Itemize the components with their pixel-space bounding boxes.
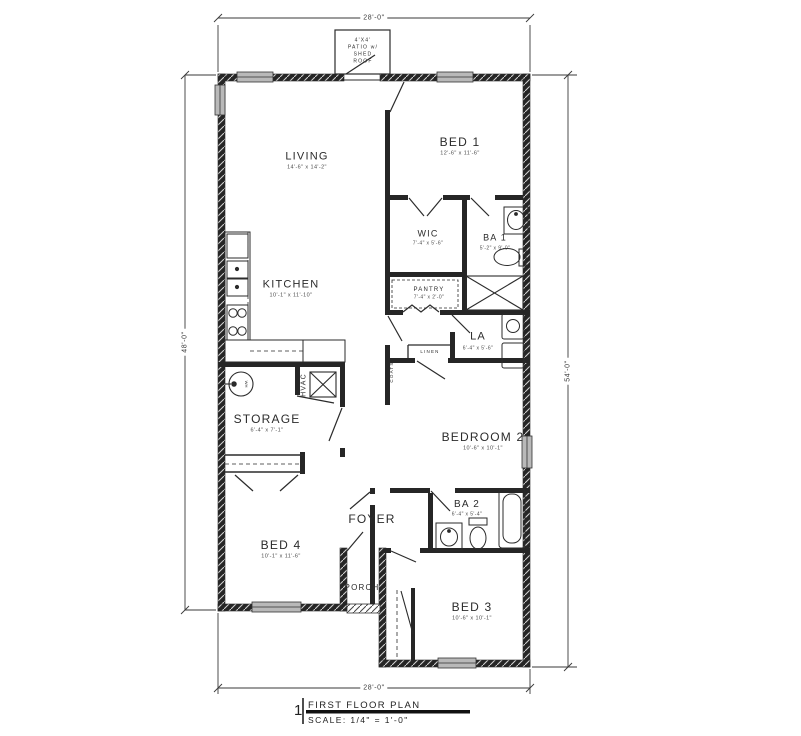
floor-plan-sheet: 4'X4' PATIO w/ SHED ROOF LIVING 14'-6" x… [0,0,801,736]
ba2-toilet-tank [469,518,487,525]
room-dims-kitchen: 10'-1" x 11'-10" [270,293,313,299]
room-label-la: LA [470,332,486,343]
room-dims-storage: 6'-4" x 7'-1" [251,428,284,434]
room-dims-la: 6'-4" x 5'-6" [463,347,493,352]
ba1-door [471,198,489,216]
hall-door [388,316,402,341]
washer [502,314,524,339]
interior-walls [218,110,530,662]
front-door [347,532,363,551]
patio-label-line2: PATIO w/ [348,46,378,51]
room-dims-bedroom2: 10'-6" x 10'-1" [463,446,503,452]
room-label-hvac: HVAC [301,373,308,397]
room-label-storage: STORAGE [234,413,301,425]
sheet-number: 1 [294,702,302,719]
room-label-coats: COATS [390,361,395,382]
porch-threshold-hatch [347,604,380,613]
fridge [227,234,248,258]
room-label-wic: WIC [417,230,438,239]
drawing-title: FIRST FLOOR PLAN [308,700,421,711]
room-label-bedroom2: BEDROOM 2 [442,431,525,443]
ba2-door [431,491,450,511]
hvac-unit [310,372,336,397]
storage-door [329,408,342,441]
room-label-porch: PORCH [345,584,380,592]
room-dims-pantry: 7'-4" x 2'-0" [414,296,444,301]
room-dims-living: 14'-6" x 14'-2" [287,165,327,171]
dryer [502,343,524,368]
water-heater-label: WH [244,381,248,388]
bed4-closet-door-left [235,475,253,491]
dimension-left: 48'-0" [182,328,189,355]
ba2-fixtures [436,489,525,550]
room-label-ba2: BA 2 [454,500,480,510]
bed1-door [390,82,404,112]
room-label-foyer: FOYER [348,513,395,525]
room-label-ba1: BA 1 [483,234,507,243]
bed4-door [350,492,370,509]
room-label-bed1: BED 1 [440,136,481,148]
drawing-scale: SCALE: 1/4" = 1'-0" [308,715,409,725]
room-label-linen: LINEN [420,350,439,355]
room-dims-ba1: 5'-2" x 9'-0" [480,247,510,252]
room-label-bed3: BED 3 [452,601,493,613]
room-dims-wic: 7'-4" x 5'-6" [413,242,443,247]
room-label-kitchen: KITCHEN [263,280,320,291]
pantry-bifold-door [403,305,439,312]
dimension-top: 28'-0" [360,15,387,22]
la-door [452,315,470,333]
shower [466,276,523,310]
room-label-pantry: PANTRY [414,287,445,293]
patio-label-line1: 4'X4' [355,39,372,44]
floor-plan-linework [0,0,801,736]
patio-label-line4: ROOF [353,60,372,65]
room-dims-bed3: 10'-6" x 10'-1" [452,616,492,622]
bed4-closet-door-right [280,475,298,491]
wic-door-right [427,198,442,216]
room-dims-ba2: 6'-4" x 5'-4" [452,513,482,518]
room-dims-bed1: 12'-6" x 11'-6" [440,151,479,157]
bedroom2-door [417,361,445,379]
doors [235,55,489,562]
ba2-toilet [470,527,486,549]
wic-door-left [409,198,424,216]
dimension-bottom: 28'-0" [360,685,387,692]
bed3-door [391,551,416,562]
patio-label-line3: SHED [354,53,373,58]
room-label-bed4: BED 4 [261,539,302,551]
room-label-living: LIVING [285,152,328,163]
dimension-right: 54'-0" [565,357,572,384]
room-dims-bed4: 10'-1" x 11'-6" [261,554,300,560]
